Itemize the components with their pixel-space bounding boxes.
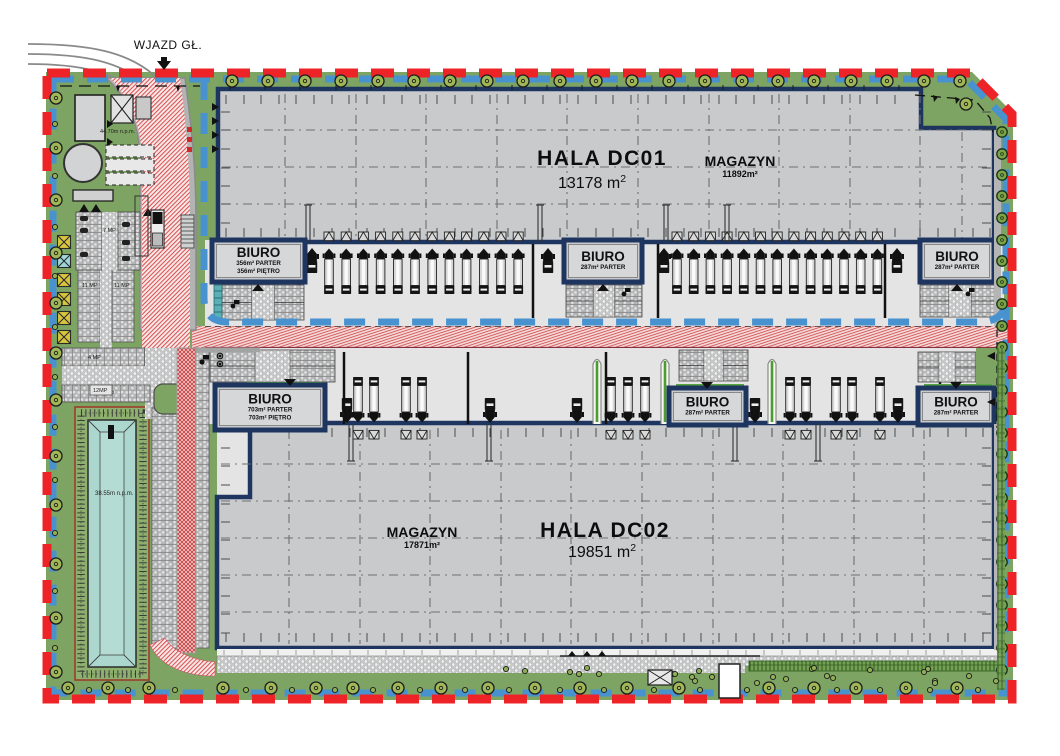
svg-text:19851 m2: 19851 m2 <box>568 542 636 561</box>
svg-text:12MP: 12MP <box>93 388 108 394</box>
svg-text:4 MP: 4 MP <box>88 355 101 361</box>
svg-text:44.70m n.p.m.: 44.70m n.p.m. <box>100 129 136 135</box>
svg-text:703m² PIĘTRO: 703m² PIĘTRO <box>249 415 292 422</box>
svg-text:356m² PIĘTRO: 356m² PIĘTRO <box>237 268 280 275</box>
svg-text:BIURO: BIURO <box>237 245 281 260</box>
svg-text:287m² PARTER: 287m² PARTER <box>685 410 730 417</box>
svg-text:703m² PARTER: 703m² PARTER <box>248 407 293 414</box>
svg-text:38.55m n.p.m.: 38.55m n.p.m. <box>95 491 134 497</box>
svg-text:287m² PARTER: 287m² PARTER <box>934 410 979 417</box>
svg-text:11 MP: 11 MP <box>82 283 98 289</box>
svg-text:MAGAZYN: MAGAZYN <box>705 153 776 169</box>
svg-text:BIURO: BIURO <box>935 249 979 264</box>
svg-text:BIURO: BIURO <box>581 249 625 264</box>
svg-text:17871m²: 17871m² <box>404 540 440 550</box>
svg-text:HALA DC02: HALA DC02 <box>540 519 670 542</box>
svg-text:WJAZD GŁ.: WJAZD GŁ. <box>134 38 203 52</box>
svg-text:BIURO: BIURO <box>934 395 978 410</box>
svg-text:HALA DC01: HALA DC01 <box>537 147 667 170</box>
svg-text:11 MP: 11 MP <box>114 283 130 289</box>
svg-text:7 MP: 7 MP <box>103 228 116 234</box>
svg-text:11892m²: 11892m² <box>722 169 758 179</box>
svg-text:356m² PARTER: 356m² PARTER <box>236 260 281 267</box>
svg-text:287m² PARTER: 287m² PARTER <box>935 264 980 271</box>
svg-text:MAGAZYN: MAGAZYN <box>387 524 458 540</box>
svg-text:BIURO: BIURO <box>248 392 292 407</box>
svg-text:BIURO: BIURO <box>686 395 730 410</box>
svg-text:13178 m2: 13178 m2 <box>558 173 626 192</box>
svg-text:287m² PARTER: 287m² PARTER <box>581 264 626 271</box>
